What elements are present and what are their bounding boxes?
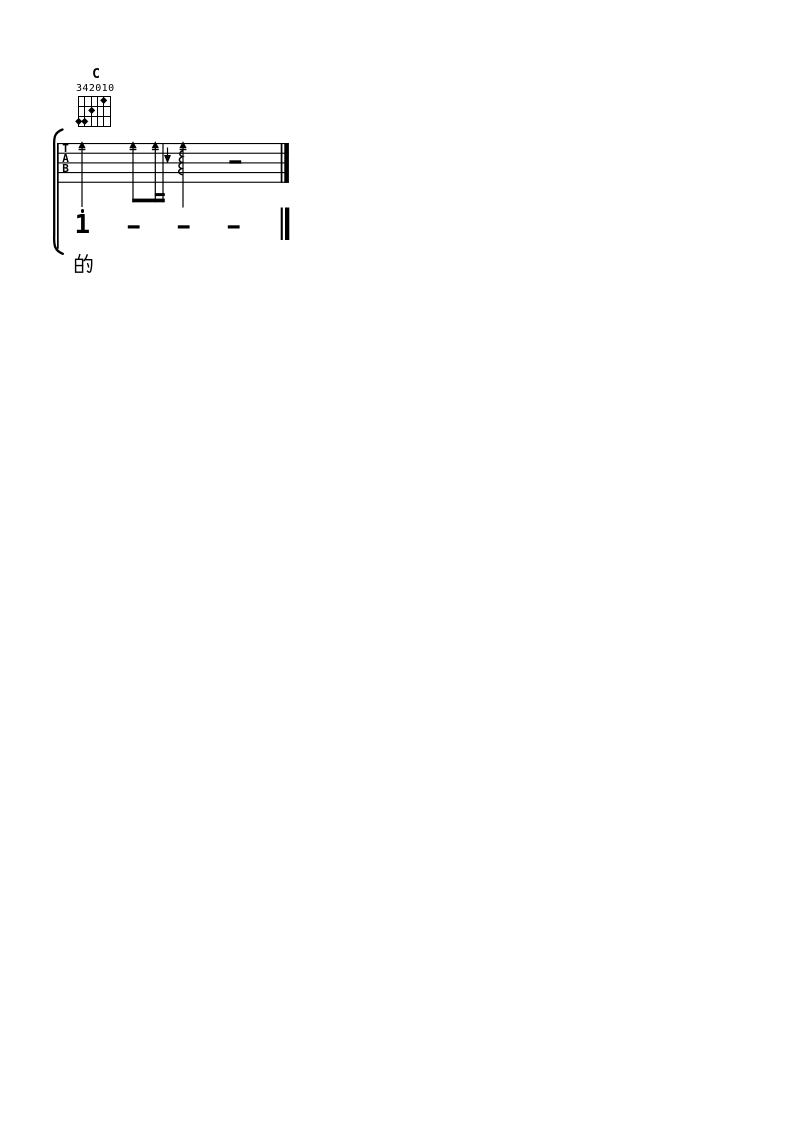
chord-fret-line [78,106,111,107]
tab-sheet-page: C 342010 T A B [0,0,793,1122]
up-strum-arrow-icon [152,149,159,151]
staff-final-barline [281,143,289,183]
up-strum-arrow-icon [130,149,137,151]
up-strum-arrow-icon [152,141,159,148]
melody-duration-dash [228,225,240,228]
chord-string-line [110,96,111,127]
strum-stem [182,146,183,208]
chord-dot [100,97,108,105]
eighth-beam [132,199,165,203]
chord-grid [78,96,111,127]
up-strum-arrow-icon [78,141,85,148]
chord-fret-line [78,96,111,97]
up-strum-arrow-icon [129,141,136,148]
strum-stem [155,146,156,202]
melody-digit: 1 [74,212,90,238]
chord-fret-line [78,126,111,127]
sheet-graphics [0,0,793,1122]
down-strum-arrow-icon [167,148,168,156]
chord-dot [81,117,89,125]
chord-name: C [84,68,108,82]
down-strum-arrow-icon [164,155,171,164]
arpeggio-squiggle-icon [179,151,183,175]
strum-stem [132,146,133,202]
chord-fingering: 342010 [76,83,118,94]
melody-duration-dash [128,225,140,228]
chord-string-line [97,96,98,127]
sixteenth-beam [155,193,165,196]
chord-dot [87,107,95,115]
melody-duration-dash [178,225,190,228]
up-strum-arrow-icon [79,149,86,151]
strum-stem [81,146,82,207]
octave-dot [81,209,84,212]
lyric-character: 的 [75,255,76,256]
strum-stem [162,143,163,202]
up-strum-arrow-icon [180,149,187,151]
half-rest-dash [229,160,241,163]
up-strum-arrow-icon [179,141,186,148]
strum-marks [78,141,186,207]
chord-fret-line [78,116,111,117]
melody-final-barline [281,208,290,241]
melody-dashes [128,225,240,228]
tab-staff-lines [57,143,289,183]
tab-letter-b: B [59,164,72,174]
lyric-glyph [76,255,92,273]
